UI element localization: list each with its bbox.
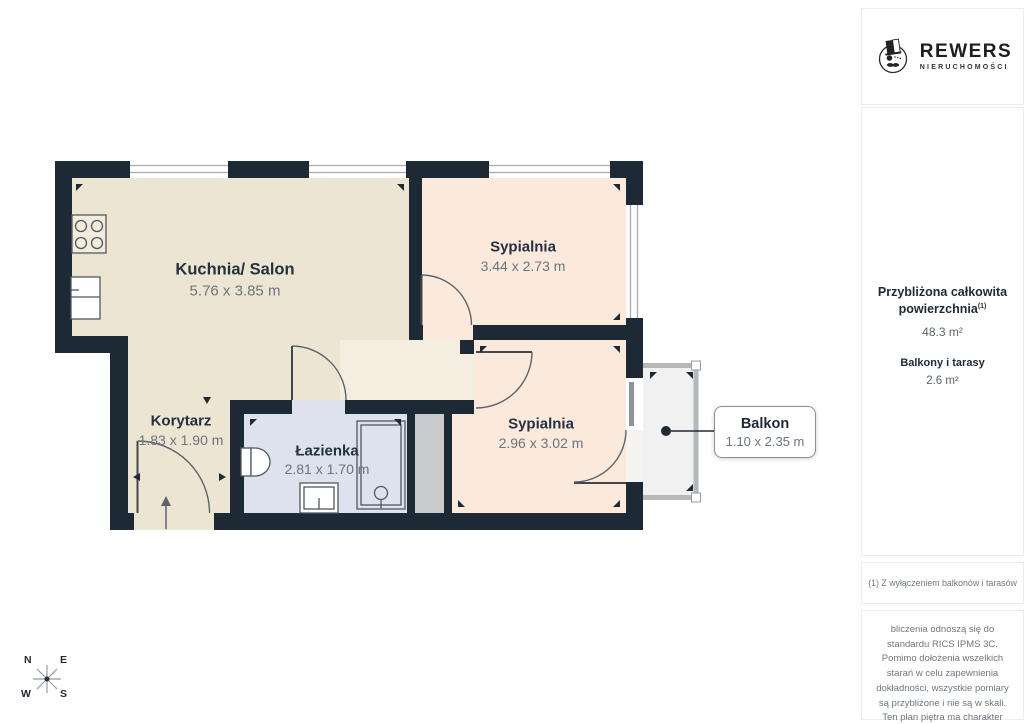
- room-label-bedroom1: Sypialnia: [490, 239, 556, 256]
- room-dims-bedroom1: 3.44 x 2.73 m: [481, 258, 566, 274]
- compass-icon: [33, 665, 61, 693]
- sidebar-disclaimer-card: bliczenia odnoszą się do standardu RICS …: [861, 610, 1024, 720]
- compass-east-label: E: [60, 654, 67, 666]
- room-label-kitchen: Kuchnia/ Salon: [175, 261, 294, 280]
- room-dims-bathroom: 2.81 x 1.70 m: [285, 461, 370, 477]
- brand-tagline: NIERUCHOMOŚCI: [920, 64, 1012, 71]
- total-area-label-line1: Przybliżona całkowita: [862, 284, 1023, 301]
- disclaimer-text: bliczenia odnoszą się do standardu RICS …: [862, 611, 1023, 724]
- room-label-balcony: Balkon: [741, 416, 789, 432]
- footnote-ref: (1): [978, 303, 987, 310]
- room-dims-kitchen: 5.76 x 3.85 m: [190, 283, 281, 300]
- balcony-callout: Balkon 1.10 x 2.35 m: [714, 406, 816, 458]
- room-label-hallway: Korytarz: [151, 413, 212, 430]
- balcony-area-value: 2.6 m²: [862, 375, 1023, 387]
- rewers-logo-icon: [873, 37, 913, 77]
- compass-north-label: N: [24, 654, 32, 666]
- room-dims-balcony: 1.10 x 2.35 m: [726, 434, 805, 449]
- washing-machine-icon: [300, 483, 338, 513]
- balcony-area-label: Balkony i tarasy: [862, 357, 1023, 369]
- stove-icon: [72, 215, 106, 253]
- room-dims-bedroom2: 2.96 x 3.02 m: [499, 435, 584, 451]
- compass-west-label: W: [21, 688, 31, 700]
- sidebar-footnote-card: (1) Z wyłączeniem balkonów i tarasów: [861, 562, 1024, 604]
- sidebar-logo-card: REWERS NIERUCHOMOŚCI: [861, 8, 1024, 105]
- room-dims-hallway: 1.83 x 1.90 m: [139, 432, 224, 448]
- sidebar-summary-card: Przybliżona całkowita powierzchnia(1) 48…: [861, 107, 1024, 556]
- room-label-bathroom: Łazienka: [295, 443, 358, 460]
- floorplan-page: N E W S Kuchnia/ Salon 5.76 x 3.85 m Syp…: [0, 0, 1024, 724]
- room-label-bedroom2: Sypialnia: [508, 416, 574, 433]
- total-area-value: 48.3 m²: [862, 325, 1023, 339]
- footnote-text: (1) Z wyłączeniem balkonów i tarasów: [862, 563, 1023, 603]
- sink-icon: [71, 277, 100, 319]
- compass-south-label: S: [60, 688, 67, 700]
- brand-name: REWERS: [920, 42, 1012, 61]
- total-area-label-line2: powierzchnia(1): [862, 301, 1023, 318]
- toilet-icon: [241, 448, 270, 476]
